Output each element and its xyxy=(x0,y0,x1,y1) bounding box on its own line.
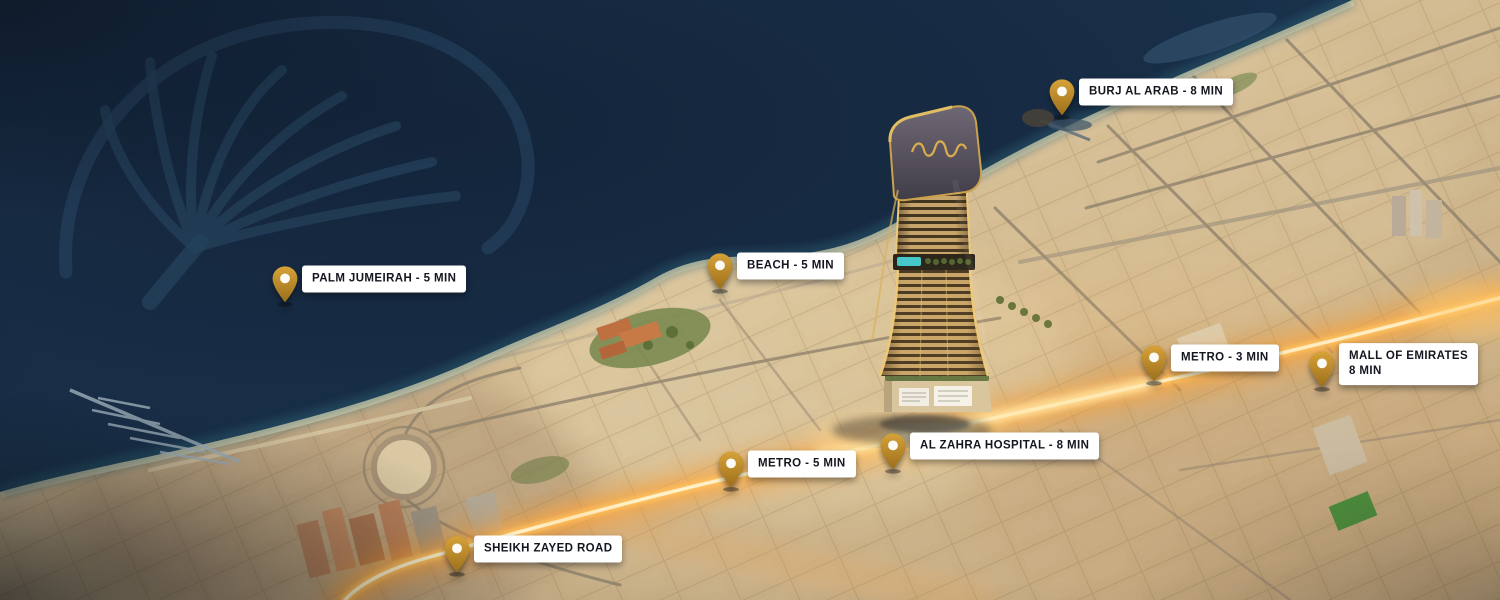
location-map: PALM JUMEIRAH - 5 MIN BEACH - 5 MIN BURJ… xyxy=(0,0,1500,600)
beach-pin-icon xyxy=(706,252,734,294)
marker-label: BURJ AL ARAB - 8 MIN xyxy=(1079,79,1233,106)
marker-label: PALM JUMEIRAH - 5 MIN xyxy=(302,266,466,293)
roundabout xyxy=(364,427,444,507)
marker-label: METRO - 5 MIN xyxy=(748,451,856,478)
hospital-pin-icon xyxy=(879,432,907,474)
burj-al-arab-pin-icon xyxy=(1048,78,1076,120)
road-pin-icon xyxy=(443,535,471,577)
marker-label: SHEIKH ZAYED ROAD xyxy=(474,536,622,563)
map-canvas xyxy=(0,0,1500,600)
marker-label: MALL OF EMIRATES8 MIN xyxy=(1339,343,1478,385)
mall-of-emirates-pin-icon xyxy=(1308,350,1336,392)
metro-pin-icon xyxy=(1140,344,1168,386)
marker-label: AL ZAHRA HOSPITAL - 8 MIN xyxy=(910,433,1099,460)
palm-jumeirah-pin-icon xyxy=(271,265,299,307)
marker-label: BEACH - 5 MIN xyxy=(737,253,844,280)
marker-label: METRO - 3 MIN xyxy=(1171,345,1279,372)
metro-pin-icon xyxy=(717,450,745,492)
